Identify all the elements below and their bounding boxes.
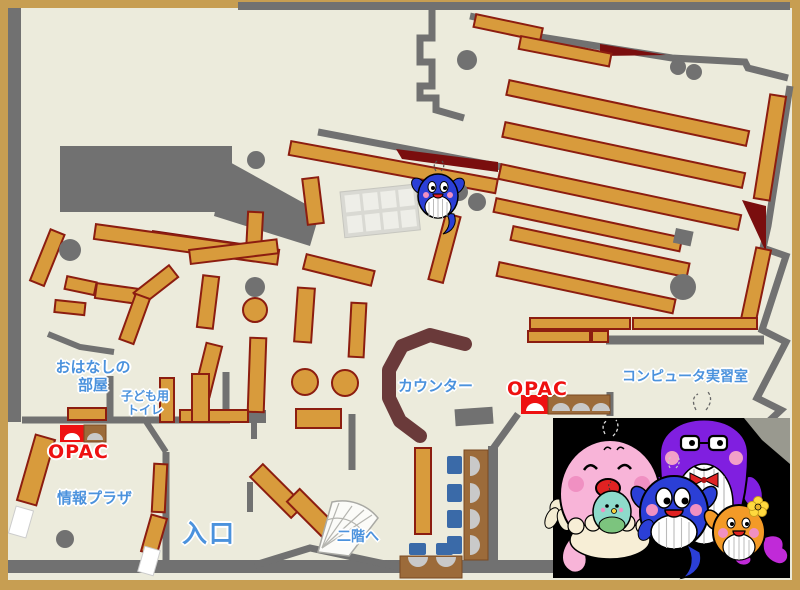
wall xyxy=(247,482,253,512)
wall xyxy=(238,2,790,10)
bookshelf xyxy=(152,464,167,513)
bookshelf xyxy=(633,318,757,329)
pillar xyxy=(59,239,81,261)
bookshelf xyxy=(180,410,248,422)
bookshelf xyxy=(528,331,590,342)
floor-map-drawing xyxy=(0,0,800,590)
bookshelf xyxy=(248,338,267,413)
pillar xyxy=(670,274,696,300)
pillar xyxy=(457,50,477,70)
bookshelf xyxy=(349,303,367,358)
bookshelf xyxy=(68,408,106,420)
bookshelf xyxy=(592,331,608,342)
pillar xyxy=(670,59,686,75)
round-table xyxy=(292,369,318,395)
pillar xyxy=(468,193,486,211)
pillar xyxy=(686,64,702,80)
pillar xyxy=(247,151,265,169)
opac-terminal-left xyxy=(60,425,106,442)
pillar xyxy=(245,277,265,297)
bookshelf xyxy=(415,448,431,534)
round-table xyxy=(332,370,358,396)
chair xyxy=(409,543,426,555)
counter-desk xyxy=(454,407,493,427)
bookshelf xyxy=(160,378,174,422)
round-table xyxy=(243,298,267,322)
study-grid-table xyxy=(340,184,420,238)
bookshelf xyxy=(54,300,85,315)
bookshelf xyxy=(294,288,315,343)
wall xyxy=(8,560,556,573)
opac-terminal-right xyxy=(521,395,610,414)
pillar xyxy=(56,530,74,548)
structure-block xyxy=(60,146,232,212)
library-floor-map: おはなしの 部屋 子ども用 トイレ OPAC 情報プラザ 入口 二階へ カウンタ… xyxy=(0,0,800,590)
wall xyxy=(8,8,21,422)
wall xyxy=(251,423,257,439)
whale-family-illustration xyxy=(542,392,790,578)
bookshelf xyxy=(530,318,630,329)
bookshelf xyxy=(296,409,341,428)
chair xyxy=(436,543,453,555)
bookshelf xyxy=(192,374,209,422)
